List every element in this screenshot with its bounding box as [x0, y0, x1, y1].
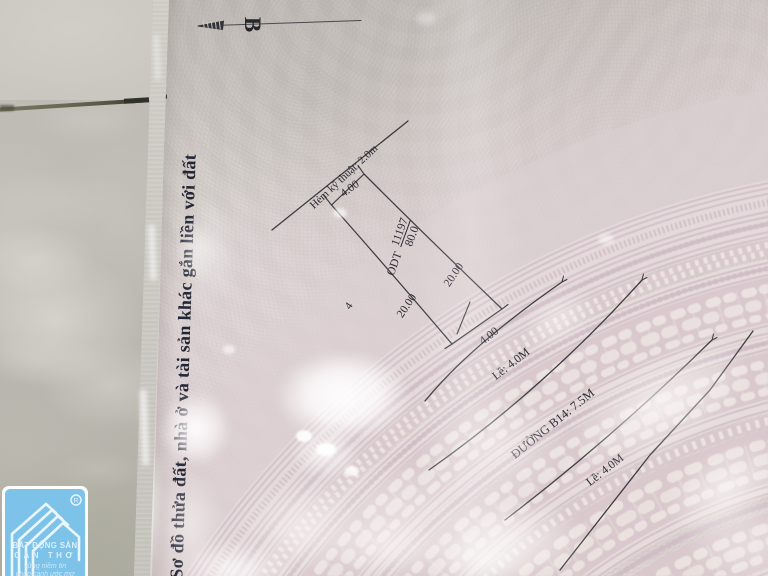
- svg-text:BẤT ĐỘNG SẢN: BẤT ĐỘNG SẢN: [12, 540, 77, 550]
- svg-text:R: R: [74, 498, 79, 505]
- svg-text:CẦN THƠ: CẦN THƠ: [14, 550, 76, 560]
- svg-text:vững niềm tin: vững niềm tin: [24, 561, 66, 570]
- svg-text:chắp cánh ước mơ: chắp cánh ước mơ: [16, 569, 75, 576]
